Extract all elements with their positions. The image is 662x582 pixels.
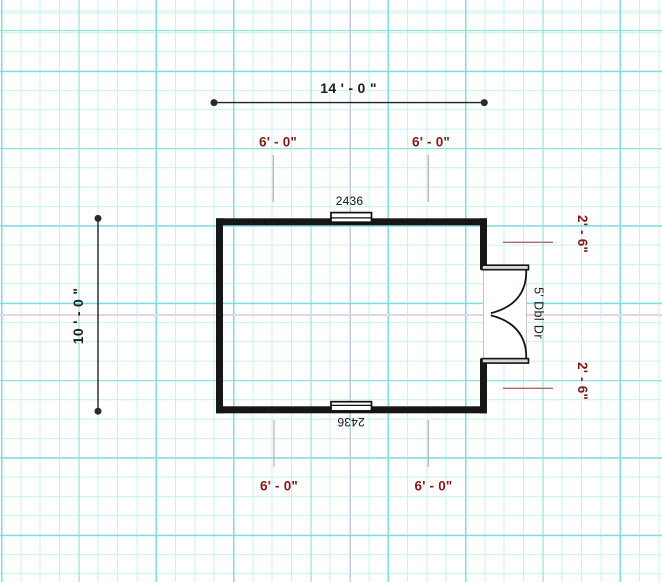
window-offset-label-top-left[interactable]: 6' - 0" (259, 135, 297, 149)
double-door[interactable] (482, 265, 529, 363)
wall-right-upper[interactable] (480, 218, 487, 269)
window-offset-label-top-right[interactable]: 6' - 0" (412, 135, 450, 149)
door-offset-label-bottom[interactable]: 2' - 6" (575, 362, 589, 400)
overall-height-dimension-label[interactable]: 10 ' - 0 " (71, 288, 85, 345)
wall-right-lower[interactable] (480, 359, 487, 414)
window-top-size-label[interactable]: 2436 (336, 195, 364, 207)
wall-left[interactable] (216, 218, 223, 413)
dimension-endpoint-dot (95, 215, 102, 222)
dimension-endpoint-dot (481, 99, 488, 106)
window-bottom[interactable] (331, 402, 372, 411)
walls[interactable] (216, 218, 487, 413)
overall-width-dimension-label[interactable]: 14 ' - 0 " (320, 81, 377, 95)
window-bottom-size-label[interactable]: 2436 (337, 416, 365, 428)
door-offset-label-top[interactable]: 2' - 6" (575, 215, 589, 253)
dimension-line-height[interactable] (95, 215, 102, 415)
door-size-label[interactable]: 5' Dbl Dr (531, 287, 544, 339)
door-jamb-bottom (482, 359, 529, 364)
window-top[interactable] (331, 213, 372, 223)
door-opening (484, 270, 527, 359)
dimension-endpoint-dot (211, 99, 218, 106)
dimension-endpoint-dot (95, 408, 102, 415)
window-offset-label-bottom-right[interactable]: 6' - 0" (414, 479, 452, 493)
window-offset-label-bottom-left[interactable]: 6' - 0" (260, 479, 298, 493)
door-jamb-top (482, 265, 529, 270)
drawing-canvas[interactable]: 14 ' - 0 " 10 ' - 0 " 6' - 0" 6' - 0" 6'… (0, 0, 662, 582)
dimension-line-width[interactable] (211, 99, 488, 106)
